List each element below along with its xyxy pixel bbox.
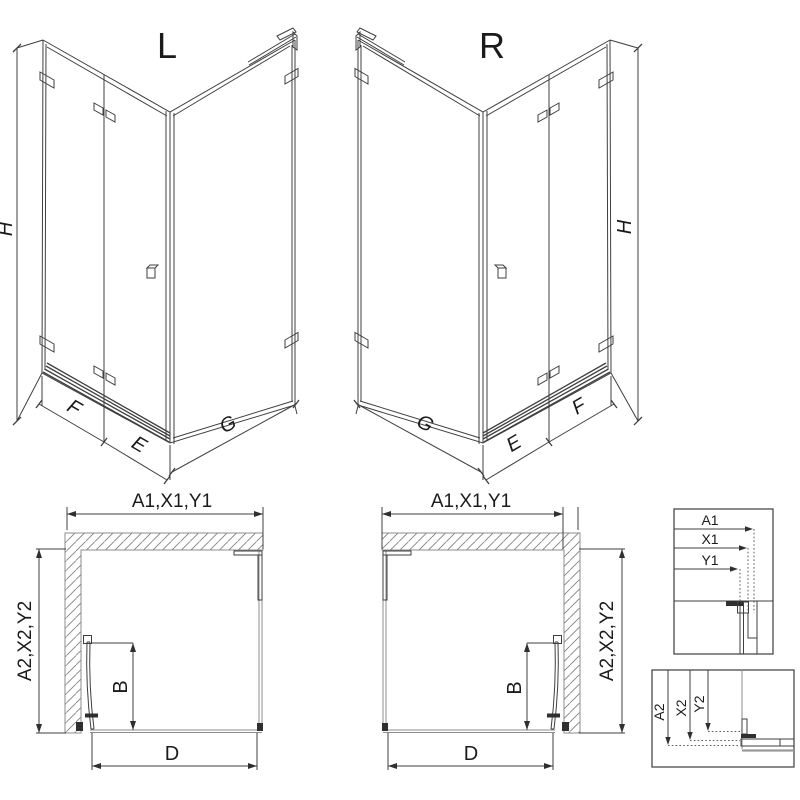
detail-label-x2: X2: [673, 699, 689, 716]
detail-box-vertical-dims: A2 X2 Y2: [651, 670, 794, 767]
hinges-and-brackets: [355, 28, 613, 385]
dim-label-depth: A2,X2,Y2: [597, 601, 618, 681]
dim-label-height: H: [0, 221, 17, 236]
detail-frame: [674, 509, 773, 654]
reference-dotted-lines: [668, 732, 742, 746]
dim-label-door: E: [503, 431, 526, 457]
detail-label-y2: Y2: [691, 695, 707, 712]
door-handle-icon: [85, 714, 98, 718]
dim-label-side: G: [413, 410, 437, 437]
plan-view-right: A1,X1,Y1 A2,X2,Y2 B D: [382, 491, 625, 770]
glass-walls: [383, 550, 555, 733]
dim-label-door: E: [128, 432, 151, 458]
glass-panel-outline: [358, 40, 611, 443]
dim-label-depth: A2,X2,Y2: [15, 601, 36, 681]
technical-drawing-page: L H F E G R H F E G A1,X1,Y1: [0, 0, 800, 800]
reference-dotted-lines: [740, 529, 754, 613]
door-handle-icon: [495, 265, 506, 278]
dim-label-side: G: [216, 411, 240, 438]
dim-label-panel: F: [568, 393, 591, 419]
dimension-lines: [356, 40, 638, 480]
glass-walls: [90, 550, 262, 733]
profile-extension-lines: [780, 739, 794, 746]
dimension-arrows: [730, 526, 753, 571]
plan-view-left: A1,X1,Y1 A2,X2,Y2 B D: [15, 491, 263, 770]
iso-view-left: L H F E G: [0, 25, 299, 484]
profile-flange: [741, 734, 756, 738]
wall-hatch: [382, 533, 580, 733]
iso-right-label: R: [479, 25, 505, 66]
dimension-lines: [17, 40, 297, 480]
corner-connector: [257, 723, 263, 731]
dim-label-panel: F: [63, 395, 86, 421]
detail-label-a1: A1: [701, 512, 718, 528]
iso-view-right: R H F E G: [354, 25, 642, 484]
detail-box-horizontal-dims: A1 X1 Y1: [674, 509, 773, 654]
wall-pivot: [76, 722, 83, 731]
dim-label-door: B: [110, 680, 132, 693]
wall-pivot: [562, 722, 569, 731]
dim-label-width: A1,X1,Y1: [132, 491, 212, 512]
corner-profile: [234, 551, 262, 555]
door-handle-icon: [147, 265, 158, 278]
dim-label-height: H: [614, 219, 636, 234]
shower-enclosure-drawing: L H F E G R H F E G A1,X1,Y1: [0, 0, 800, 800]
dim-label-bottom: D: [165, 743, 179, 765]
iso-left-label: L: [157, 25, 177, 66]
profile-channel: [741, 739, 780, 746]
detail-label-x1: X1: [701, 531, 718, 547]
corner-profile: [383, 551, 411, 555]
glass-panel-outline: [42, 40, 295, 443]
dim-label-door: B: [504, 681, 526, 694]
profile-upright: [742, 719, 747, 734]
door-handle-icon: [547, 714, 560, 718]
dimension-ticks: [354, 44, 642, 484]
dimension-arrows: [665, 723, 710, 745]
dim-label-bottom: D: [464, 743, 478, 765]
wall-hatch: [65, 533, 263, 733]
detail-frame: [652, 670, 794, 767]
hinges-and-brackets: [40, 28, 298, 385]
corner-connector: [382, 723, 388, 731]
dim-label-width: A1,X1,Y1: [431, 491, 511, 512]
detail-label-a2: A2: [651, 703, 667, 720]
detail-label-y1: Y1: [701, 552, 718, 568]
